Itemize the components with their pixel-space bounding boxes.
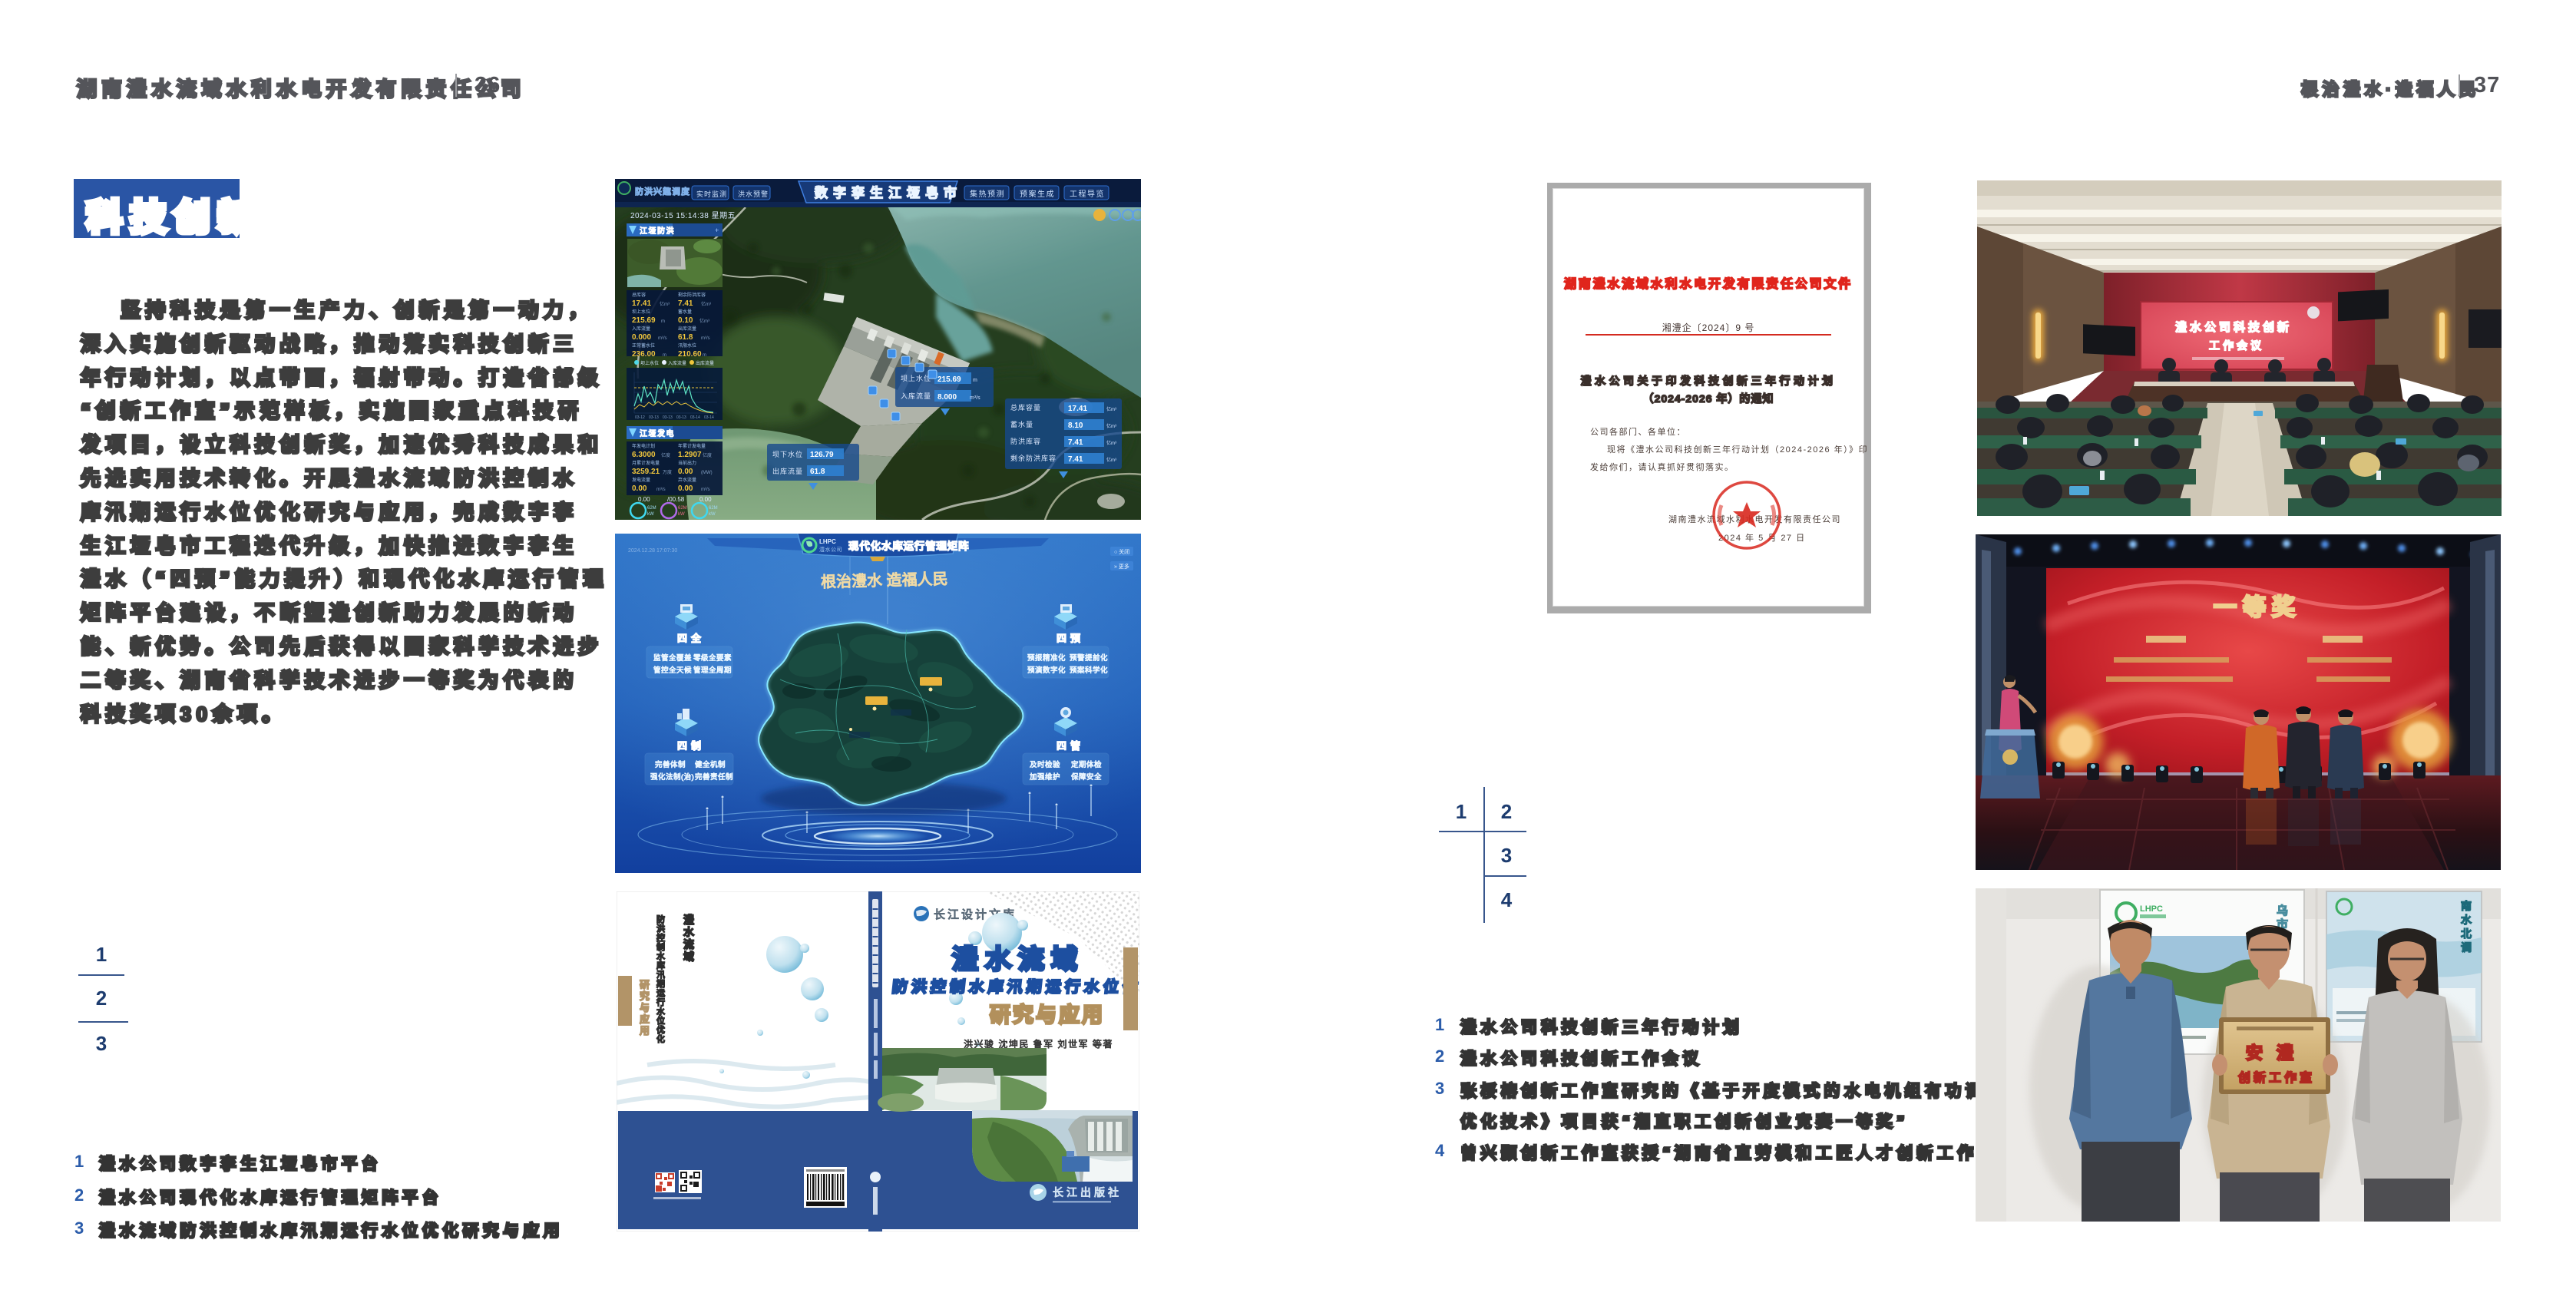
svg-text:7.41: 7.41 [678,299,693,308]
svg-text:LHPC: LHPC [2140,904,2163,914]
svg-text:2024.12.28 17:07:30: 2024.12.28 17:07:30 [628,548,677,554]
svg-text:安澧: 安澧 [2246,1043,2307,1063]
svg-text:0.00: 0.00 [678,468,693,476]
svg-text:m³/s: m³/s [701,336,710,341]
svg-text:m³/s: m³/s [658,336,667,341]
svg-text:完善责任制: 完善责任制 [695,772,733,782]
svg-text:工作会议: 工作会议 [2209,339,2264,352]
svg-text:126.79: 126.79 [810,451,834,459]
svg-text:亿m³: 亿m³ [1106,406,1116,412]
svg-text:定期体检: 定期体检 [1071,760,1102,769]
svg-text:亿m³: 亿m³ [1106,423,1116,429]
svg-text:域: 域 [683,951,694,963]
svg-text:/00.58: /00.58 [667,496,685,503]
svg-text:零级全要素: 零级全要素 [693,653,732,663]
svg-text:强化法制(治): 强化法制(治) [650,772,694,782]
svg-text:究: 究 [640,990,650,1002]
svg-text:蓄水量: 蓄水量 [678,309,692,315]
svg-text:m³/s: m³/s [970,395,980,401]
svg-text:管理全周期: 管理全周期 [693,666,732,675]
svg-text:四管: 四管 [1057,740,1084,752]
svg-text:210.60: 210.60 [678,350,702,359]
svg-text:化: 化 [656,1033,665,1044]
svg-text:防洪兴趣调度: 防洪兴趣调度 [635,186,690,197]
svg-text:汛限水位: 汛限水位 [678,342,696,349]
svg-text:预演数字化: 预演数字化 [1027,666,1066,675]
svg-text:澧水流域: 澧水流域 [952,945,1084,974]
svg-text:0.00: 0.00 [699,496,712,503]
svg-text:7.41: 7.41 [1068,455,1083,464]
svg-text:一等奖: 一等奖 [2214,594,2301,620]
svg-text:水: 水 [683,926,695,938]
svg-text:实时监测: 实时监测 [696,190,727,198]
svg-text:坝下水位: 坝下水位 [772,450,803,458]
svg-text:亿m³: 亿m³ [701,301,711,307]
svg-text:入库流量: 入库流量 [668,360,686,366]
svg-text:研究与应用: 研究与应用 [990,1003,1105,1027]
svg-text:坝上水位: 坝上水位 [640,360,659,366]
svg-text:0.00: 0.00 [678,484,693,493]
svg-text:m: m [973,378,977,383]
svg-text:库: 库 [656,960,665,970]
svg-text:215.69: 215.69 [937,375,961,384]
svg-text:防洪库容: 防洪库容 [1010,437,1041,445]
svg-text:月累计发电量: 月累计发电量 [632,460,660,466]
svg-text:运: 运 [656,988,665,998]
svg-text:kW: kW [678,512,685,517]
svg-text:乌: 乌 [2277,904,2288,918]
svg-text:总库容: 总库容 [632,292,646,298]
svg-text:入库流量: 入库流量 [632,326,650,332]
svg-text:保障安全: 保障安全 [1071,772,1102,782]
svg-text:发电流量: 发电流量 [632,477,650,483]
svg-text:数字孪生江垭皂市: 数字孪生江垭皂市 [815,185,962,200]
svg-text:03-13: 03-13 [663,415,673,420]
svg-text:62M: 62M [678,506,687,511]
svg-text:四预: 四预 [1057,633,1084,644]
svg-text:期: 期 [656,978,665,989]
svg-text:m: m [703,353,706,358]
svg-text:出库流量: 出库流量 [678,326,696,332]
svg-text:8.000: 8.000 [937,393,957,402]
svg-text:1.2907: 1.2907 [678,451,702,459]
svg-text:用: 用 [639,1025,650,1037]
svg-text:kW: kW [709,512,716,517]
svg-text:江垭发电: 江垭发电 [640,428,675,438]
svg-text:及时检验: 及时检验 [1030,760,1060,769]
svg-text:62M: 62M [709,506,718,511]
svg-text:03-12: 03-12 [635,415,645,420]
svg-text:澧水公司科技创新: 澧水公司科技创新 [2175,320,2292,334]
svg-text:洪兴骏 沈坤民 鲁军 刘世军 等著: 洪兴骏 沈坤民 鲁军 刘世军 等著 [964,1038,1113,1050]
svg-text:坝上水位: 坝上水位 [632,309,650,315]
svg-text:0.00: 0.00 [632,484,647,493]
svg-text:(MW): (MW) [701,471,713,475]
svg-text:亿m³: 亿m³ [1106,457,1116,463]
svg-text:m: m [663,353,666,358]
svg-text:现代化水库运行管理矩阵: 现代化水库运行管理矩阵 [848,540,969,552]
svg-text:洪: 洪 [656,923,665,934]
svg-text:监管全覆盖: 监管全覆盖 [653,653,692,663]
svg-text:制: 制 [656,941,665,952]
svg-text:» 更多: » 更多 [1114,563,1129,570]
svg-text:控: 控 [656,932,665,943]
svg-text:预警提前化: 预警提前化 [1070,653,1108,663]
svg-text:总库容量: 总库容量 [1010,403,1041,412]
svg-text:61.8: 61.8 [678,333,693,342]
svg-text:洪水预警: 洪水预警 [738,190,769,198]
svg-text:03-13: 03-13 [649,415,659,420]
svg-text:水: 水 [2461,914,2472,926]
svg-text:03-14: 03-14 [690,415,700,420]
svg-text:创新工作室: 创新工作室 [2237,1070,2315,1085]
svg-text:澧: 澧 [683,914,694,926]
svg-text:行: 行 [656,997,665,1007]
svg-text:正常蓄水位: 正常蓄水位 [632,342,655,349]
svg-text:长江出版社: 长江出版社 [1053,1186,1122,1199]
svg-text:剩余防洪库容: 剩余防洪库容 [1010,454,1057,462]
svg-text:预报精准化: 预报精准化 [1027,653,1066,663]
svg-text:入库流量: 入库流量 [901,392,931,400]
svg-text:亿度: 亿度 [661,452,670,458]
svg-text:kW: kW [647,512,654,517]
svg-text:蓄水量: 蓄水量 [1010,420,1033,428]
svg-text:出库流量: 出库流量 [696,360,714,366]
svg-text:位: 位 [656,1015,665,1026]
svg-text:优: 优 [656,1024,665,1035]
svg-text:集热预测: 集热预测 [970,189,1005,199]
svg-text:水: 水 [656,951,666,961]
svg-text:四全: 四全 [677,633,705,644]
svg-text:剩余防洪库容: 剩余防洪库容 [678,292,706,298]
svg-text:亿度: 亿度 [703,452,712,458]
svg-text:+: + [715,226,719,234]
svg-text:预案生成: 预案生成 [1020,189,1055,199]
svg-text:m³/s: m³/s [701,488,710,492]
svg-text:四制: 四制 [677,740,705,752]
svg-text:当前出力: 当前出力 [678,460,696,466]
svg-text:防: 防 [656,914,665,924]
svg-text:m³/s: m³/s [656,488,666,492]
svg-text:03-13: 03-13 [676,415,686,420]
svg-text:17.41: 17.41 [1068,405,1087,413]
svg-text:0.000: 0.000 [632,333,651,342]
svg-text:6.3000: 6.3000 [632,451,656,459]
svg-text:亿m³: 亿m³ [699,318,709,324]
svg-text:研: 研 [640,979,650,990]
svg-text:坝上水位: 坝上水位 [901,374,931,382]
svg-text:17.41: 17.41 [632,299,651,308]
svg-text:调: 调 [2461,941,2472,954]
svg-text:防洪控制水库汛期运行水位优化: 防洪控制水库汛期运行水位优化 [891,977,1139,996]
svg-text:年发电计划: 年发电计划 [632,443,655,449]
svg-text:健全机制: 健全机制 [695,760,726,769]
svg-text:62M: 62M [647,506,656,511]
svg-text:0.10: 0.10 [678,316,693,325]
svg-text:LHPC: LHPC [819,538,836,545]
svg-text:03-14: 03-14 [704,415,714,420]
svg-text:m: m [661,319,665,324]
svg-text:预案科学化: 预案科学化 [1070,666,1108,675]
svg-text:万度: 万度 [663,469,672,475]
svg-text:弃水流量: 弃水流量 [678,477,696,483]
svg-text:管控全天候: 管控全天候 [653,666,692,675]
svg-text:汛: 汛 [656,970,665,980]
svg-text:○ 关闭: ○ 关闭 [1114,548,1129,555]
svg-text:7.41: 7.41 [1068,438,1083,447]
svg-text:年累计发电量: 年累计发电量 [678,443,706,449]
svg-text:亿m³: 亿m³ [1106,440,1116,446]
svg-text:加强维护: 加强维护 [1030,772,1060,782]
svg-text:完善体制: 完善体制 [655,760,686,769]
svg-text:应: 应 [640,1013,650,1025]
svg-text:出库流量: 出库流量 [772,467,803,475]
svg-text:亿m³: 亿m³ [660,301,670,307]
svg-text:江垭防洪: 江垭防洪 [640,226,675,236]
svg-text:8.10: 8.10 [1068,422,1083,430]
svg-text:南: 南 [2461,900,2472,912]
svg-text:工程导览: 工程导览 [1070,189,1105,199]
svg-text:澧水公司: 澧水公司 [819,546,842,553]
svg-text:根治澧水 造福人民: 根治澧水 造福人民 [821,570,948,591]
svg-text:61.8: 61.8 [810,468,825,476]
svg-text:236.00: 236.00 [632,350,656,359]
svg-text:与: 与 [640,1002,650,1013]
svg-text:流: 流 [683,938,694,951]
svg-text:北: 北 [2461,927,2472,940]
svg-text:0.00: 0.00 [638,496,650,503]
svg-text:3259.21: 3259.21 [632,468,660,476]
svg-text:水: 水 [656,1006,666,1017]
svg-text:2024-03-15 15:14:38 星期五: 2024-03-15 15:14:38 星期五 [630,211,736,220]
svg-text:215.69: 215.69 [632,316,656,325]
